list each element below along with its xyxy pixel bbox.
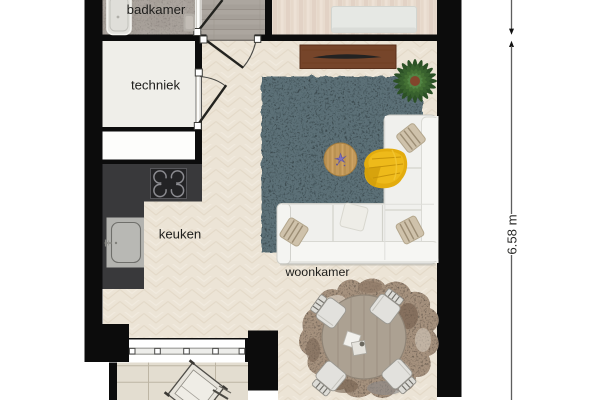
svg-text:6.58 m: 6.58 m bbox=[505, 214, 520, 254]
svg-text:techniek: techniek bbox=[131, 77, 181, 92]
svg-text:woonkamer: woonkamer bbox=[284, 265, 349, 279]
svg-text:badkamer: badkamer bbox=[127, 2, 186, 17]
svg-text:keuken: keuken bbox=[159, 227, 202, 242]
